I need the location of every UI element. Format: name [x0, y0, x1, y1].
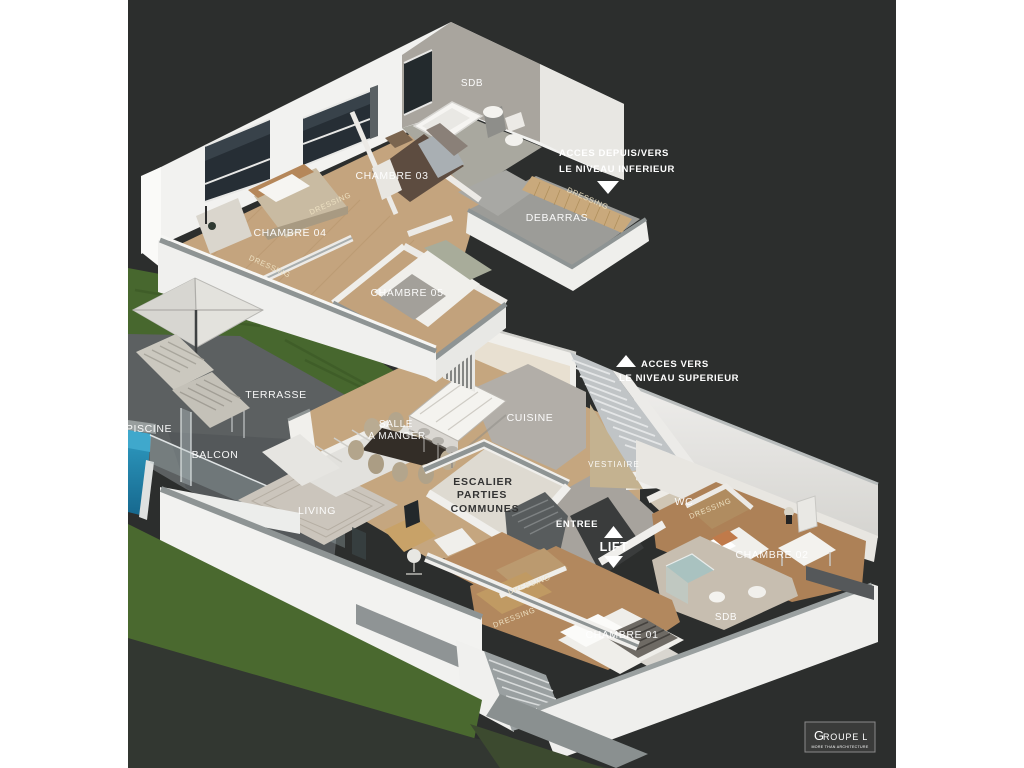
- svg-text:BALCON: BALCON: [192, 449, 239, 461]
- svg-text:DEBARRAS: DEBARRAS: [526, 212, 589, 224]
- svg-text:LE NIVEAU INFERIEUR: LE NIVEAU INFERIEUR: [559, 164, 675, 175]
- svg-text:PARTIES: PARTIES: [457, 489, 507, 501]
- svg-text:CUISINE: CUISINE: [507, 412, 554, 424]
- svg-text:LIVING: LIVING: [298, 505, 336, 517]
- svg-text:LIFT: LIFT: [600, 540, 629, 554]
- svg-text:ROUPE L: ROUPE L: [823, 732, 868, 742]
- svg-text:VESTIAIRE: VESTIAIRE: [588, 460, 640, 469]
- svg-text:TERRASSE: TERRASSE: [245, 389, 306, 401]
- svg-text:COMMUNES: COMMUNES: [451, 503, 520, 515]
- svg-text:CHAMBRE 03: CHAMBRE 03: [355, 170, 428, 182]
- svg-text:LE NIVEAU SUPERIEUR: LE NIVEAU SUPERIEUR: [619, 373, 739, 384]
- svg-text:WC: WC: [675, 496, 694, 508]
- svg-text:SDB: SDB: [461, 78, 483, 89]
- svg-text:PISCINE: PISCINE: [126, 423, 172, 435]
- svg-text:ESCALIER: ESCALIER: [453, 476, 513, 488]
- svg-text:CHAMBRE 05: CHAMBRE 05: [370, 287, 443, 299]
- svg-text:ACCES VERS: ACCES VERS: [641, 359, 709, 370]
- svg-text:A MANGER: A MANGER: [368, 431, 426, 442]
- svg-text:CHAMBRE 02: CHAMBRE 02: [735, 549, 808, 561]
- svg-text:ENTREE: ENTREE: [556, 519, 598, 530]
- svg-text:CHAMBRE 01: CHAMBRE 01: [585, 629, 658, 641]
- svg-text:SALLE: SALLE: [379, 419, 413, 430]
- svg-text:CHAMBRE 04: CHAMBRE 04: [253, 227, 326, 239]
- svg-text:ACCES DEPUIS/VERS: ACCES DEPUIS/VERS: [559, 148, 669, 159]
- svg-text:MORE THAN ARCHITECTURE: MORE THAN ARCHITECTURE: [811, 745, 868, 749]
- svg-text:SDB: SDB: [715, 612, 737, 623]
